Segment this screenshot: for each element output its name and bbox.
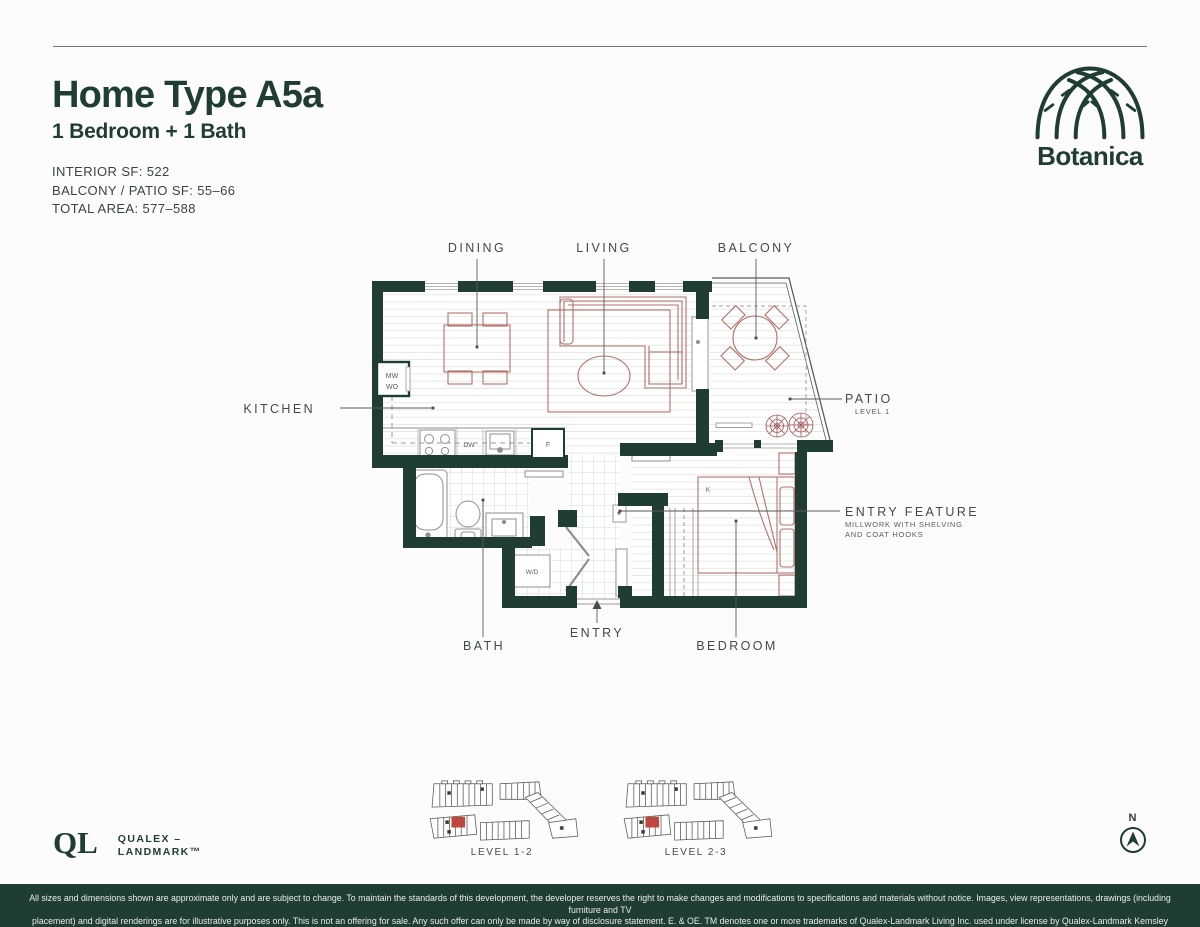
developer-name-line1: QUALEX – bbox=[118, 833, 202, 846]
north-label: N bbox=[1118, 812, 1148, 824]
floor-plan: MW WO DW F W/D K bbox=[340, 230, 870, 680]
label-living: LIVING bbox=[549, 241, 659, 255]
label-patio: PATIO bbox=[845, 392, 893, 406]
legal-footer: All sizes and dimensions shown are appro… bbox=[0, 884, 1200, 927]
spec-balcony-patio: BALCONY / PATIO SF: 55–66 bbox=[52, 182, 235, 201]
sliding-door bbox=[692, 317, 708, 391]
floorplan-sheet: Home Type A5a 1 Bedroom + 1 Bath INTERIO… bbox=[0, 0, 1200, 927]
bedroom-window bbox=[723, 440, 797, 452]
north-arrow: N bbox=[1118, 812, 1148, 854]
label-entry-feature-sub2: AND COAT HOOKS bbox=[845, 530, 923, 539]
label-entry: ENTRY bbox=[542, 626, 652, 640]
compass-icon bbox=[1119, 826, 1147, 854]
top-rule bbox=[53, 46, 1147, 47]
ql-monogram: QL bbox=[53, 828, 98, 858]
keyplan-level-2-3 bbox=[617, 776, 775, 844]
keyplan-level-2-3-label: LEVEL 2-3 bbox=[617, 847, 775, 858]
washer-dryer-label: W/D bbox=[526, 569, 539, 576]
label-dining: DINING bbox=[422, 241, 532, 255]
window bbox=[425, 281, 458, 292]
spec-interior: INTERIOR SF: 522 bbox=[52, 163, 235, 182]
toilet bbox=[455, 501, 481, 542]
dishwasher-label: DW bbox=[463, 442, 475, 449]
window bbox=[655, 281, 683, 292]
label-entry-feature: ENTRY FEATURE bbox=[845, 505, 979, 519]
page-subtitle: 1 Bedroom + 1 Bath bbox=[52, 120, 246, 144]
botanica-wordmark: Botanica bbox=[1028, 141, 1152, 172]
area-specs: INTERIOR SF: 522 BALCONY / PATIO SF: 55–… bbox=[52, 163, 235, 219]
page-title: Home Type A5a bbox=[52, 74, 322, 117]
label-bedroom: BEDROOM bbox=[682, 639, 792, 653]
entry-millwork bbox=[613, 505, 626, 522]
fridge-label: F bbox=[546, 442, 550, 449]
wall-oven-label: WO bbox=[386, 384, 399, 391]
keyplan-level-1-2-label: LEVEL 1-2 bbox=[423, 847, 581, 858]
botanica-arch-icon bbox=[1028, 60, 1152, 140]
spec-total: TOTAL AREA: 577–588 bbox=[52, 200, 235, 219]
developer-name-line2: LANDMARK™ bbox=[118, 846, 202, 859]
label-balcony: BALCONY bbox=[701, 241, 811, 255]
entry-arrow bbox=[593, 600, 602, 623]
label-kitchen: KITCHEN bbox=[205, 402, 315, 416]
keyplan-level-1-2 bbox=[423, 776, 581, 844]
king-bed-label: K bbox=[706, 487, 711, 494]
label-entry-feature-sub1: MILLWORK WITH SHELVING bbox=[845, 520, 963, 529]
label-patio-sub: LEVEL 1 bbox=[855, 407, 890, 416]
label-bath: BATH bbox=[429, 639, 539, 653]
qualex-landmark-logo: QL QUALEX – LANDMARK™ bbox=[53, 828, 202, 859]
window bbox=[513, 281, 543, 292]
microwave-label: MW bbox=[386, 373, 399, 380]
botanica-logo bbox=[1028, 60, 1152, 140]
disclaimer-line2: placement) and digital renderings are fo… bbox=[22, 916, 1178, 927]
disclaimer-line1: All sizes and dimensions shown are appro… bbox=[22, 893, 1178, 916]
window bbox=[596, 281, 629, 292]
qualex-landmark-wordmark: QUALEX – LANDMARK™ bbox=[118, 833, 202, 859]
